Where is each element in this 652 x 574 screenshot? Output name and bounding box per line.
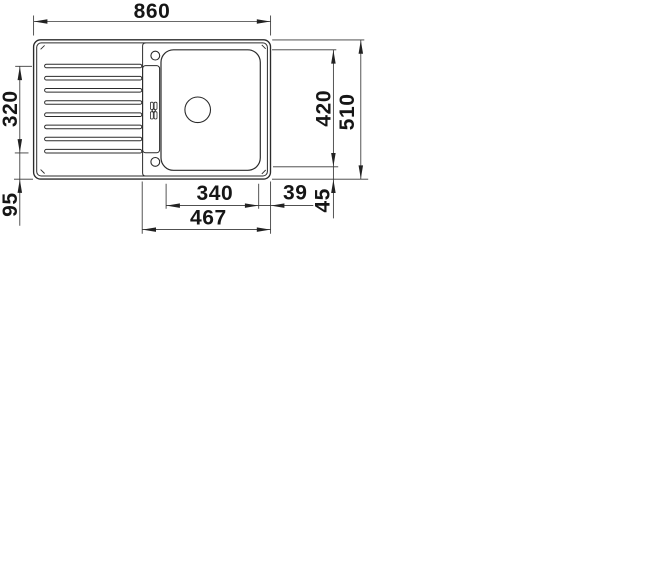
svg-text:510: 510	[336, 93, 359, 130]
svg-text:420: 420	[312, 90, 335, 127]
svg-text:45: 45	[311, 188, 334, 213]
svg-text:39: 39	[283, 182, 308, 205]
svg-text:340: 340	[196, 182, 233, 205]
svg-text:860: 860	[134, 0, 171, 23]
svg-text:467: 467	[190, 207, 227, 230]
svg-text:320: 320	[0, 90, 22, 127]
svg-text:95: 95	[0, 192, 22, 217]
